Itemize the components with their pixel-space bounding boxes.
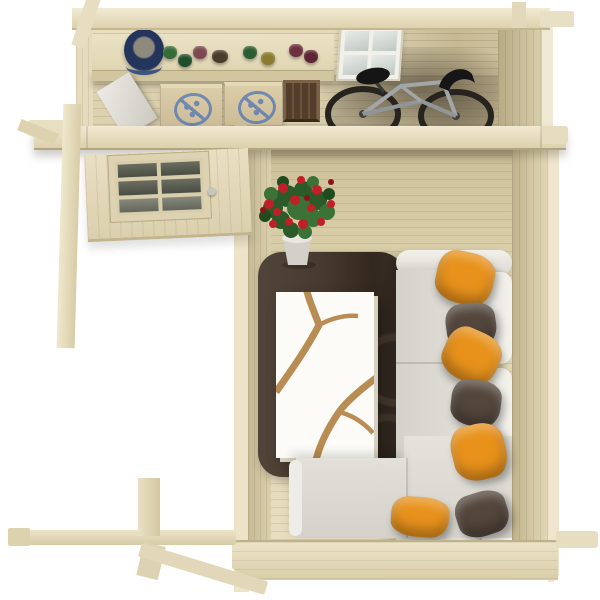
log-end — [512, 2, 526, 28]
cabin-floorplan-render — [0, 0, 600, 600]
throw-pillow — [390, 495, 451, 539]
flower-pot — [304, 50, 318, 63]
flower-pot — [212, 50, 228, 63]
door-handle — [208, 187, 216, 195]
coffee-table — [276, 292, 374, 458]
door-pane — [118, 180, 158, 195]
flower-pot — [289, 44, 303, 57]
door-pane — [162, 196, 202, 211]
table-branch-inlay — [276, 292, 374, 458]
log-joint — [86, 126, 88, 148]
storage-east-wall — [498, 26, 542, 130]
storage-east-wall-edge — [542, 26, 553, 130]
log-end — [8, 528, 30, 546]
log-end — [540, 11, 574, 27]
entry-front-wall — [84, 148, 252, 242]
log-end — [542, 126, 568, 144]
terrace-post — [138, 478, 160, 536]
potted-plant — [243, 160, 358, 272]
flower-pot — [243, 46, 257, 59]
living-west-wall-edge — [234, 234, 249, 592]
door-pane — [161, 161, 201, 176]
log-end — [556, 531, 598, 548]
sofa-armrest — [289, 460, 302, 536]
door-pane — [118, 163, 158, 178]
flower-pot — [193, 46, 207, 59]
north-wall — [72, 8, 550, 30]
living-east-wall — [512, 147, 549, 543]
box-logo-print — [172, 91, 214, 129]
terrace-beam — [14, 530, 236, 545]
cardboard-box — [224, 82, 282, 125]
dividing-wall — [34, 126, 566, 150]
flower-pot — [178, 54, 192, 67]
living-east-wall-edge — [548, 136, 559, 582]
window-pane — [372, 31, 397, 51]
box-logo-print — [236, 89, 278, 127]
south-wall — [232, 540, 558, 580]
cardboard-box — [160, 84, 222, 126]
door-pane — [119, 198, 159, 213]
door-pane — [161, 178, 201, 193]
window-pane — [344, 31, 369, 51]
wooden-crate — [283, 80, 320, 122]
flower-pot — [163, 46, 177, 59]
bucket-rim — [126, 58, 162, 75]
flower-pot — [261, 52, 275, 65]
glazed-door — [108, 152, 211, 222]
